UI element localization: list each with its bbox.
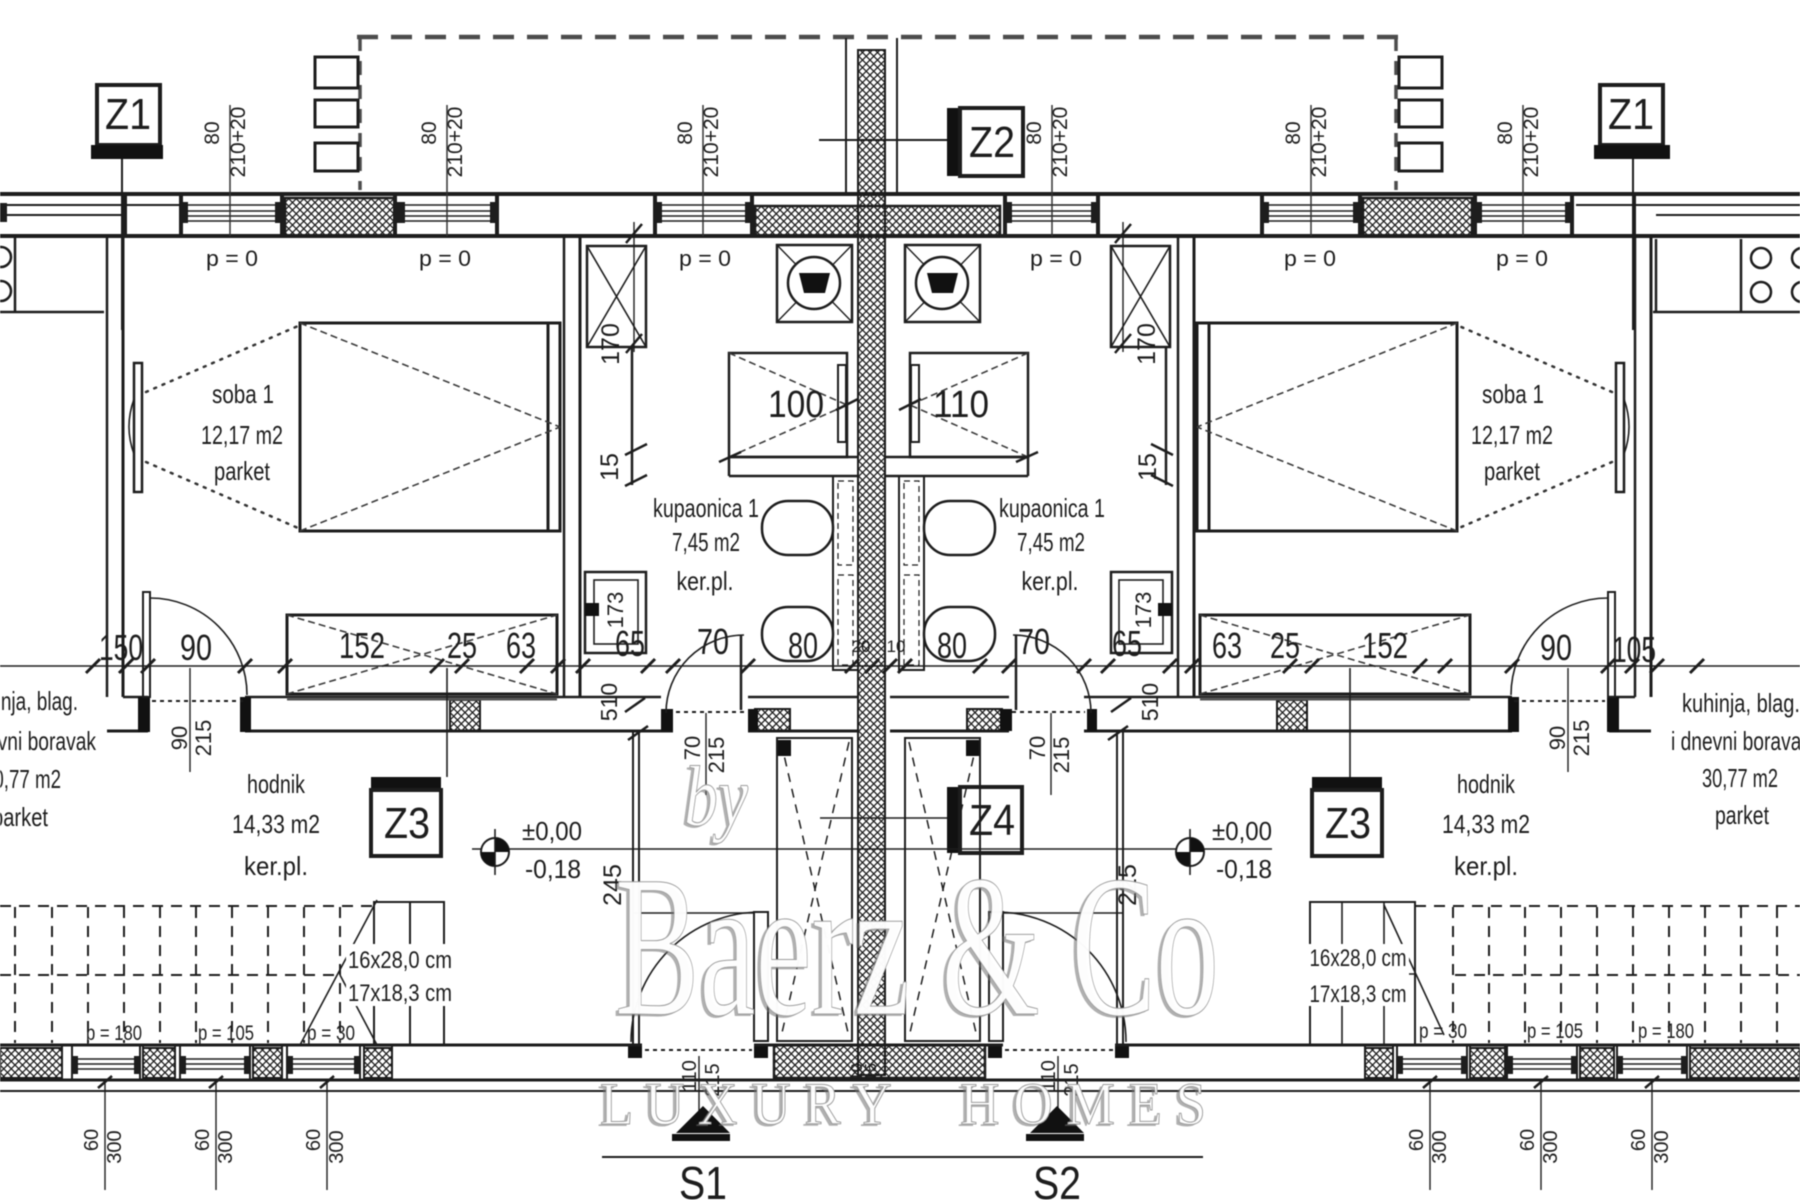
svg-text:p = 0: p = 0 [679,246,731,271]
svg-text:80: 80 [1023,121,1046,144]
svg-text:300: 300 [104,1130,126,1163]
svg-text:14,33 m2: 14,33 m2 [1442,809,1530,839]
svg-text:70: 70 [1018,621,1050,662]
svg-text:10: 10 [887,637,906,656]
svg-text:215: 215 [1049,737,1074,774]
svg-text:p = 30: p = 30 [307,1022,355,1045]
svg-text:p = 0: p = 0 [1030,246,1082,271]
svg-text:ker.pl.: ker.pl. [244,851,308,881]
svg-text:63: 63 [506,625,536,666]
svg-text:65: 65 [615,623,645,664]
svg-text:p = 0: p = 0 [206,246,258,271]
svg-text:15: 15 [596,453,624,481]
svg-text:20: 20 [852,637,871,656]
svg-text:parket: parket [1484,456,1541,486]
svg-text:17x18,3 cm: 17x18,3 cm [348,980,452,1007]
svg-text:60: 60 [192,1129,214,1151]
svg-text:p = 30: p = 30 [1419,1020,1467,1043]
svg-text:30,77 m2: 30,77 m2 [0,764,61,794]
svg-text:parket: parket [0,802,49,832]
svg-text:16x28,0 cm: 16x28,0 cm [1310,945,1407,972]
svg-text:170: 170 [1133,323,1161,365]
svg-text:70: 70 [1025,736,1050,760]
svg-text:p = 105: p = 105 [1527,1020,1583,1043]
svg-text:510: 510 [596,683,622,721]
svg-text:60: 60 [1406,1129,1428,1151]
svg-text:65: 65 [1112,623,1142,664]
svg-text:p = 0: p = 0 [1496,246,1548,271]
svg-text:150: 150 [99,627,143,668]
svg-text:parket: parket [1715,800,1770,830]
svg-text:300: 300 [1540,1130,1562,1163]
svg-text:80: 80 [674,121,697,144]
svg-text:parket: parket [214,456,271,486]
svg-text:7,45 m2: 7,45 m2 [672,527,740,557]
svg-text:90: 90 [167,726,192,750]
svg-text:60: 60 [1517,1129,1539,1151]
svg-text:kupaonica 1: kupaonica 1 [653,493,759,523]
svg-text:Z2: Z2 [969,118,1015,167]
svg-text:kuhinja, blag.: kuhinja, blag. [1682,688,1800,718]
svg-text:L U X U R Y H O M E S: L U X U R Y H O M E S [600,1071,1206,1137]
svg-text:i dnevni boravak: i dnevni boravak [1671,726,1800,756]
svg-text:soba 1: soba 1 [212,379,274,409]
svg-text:80: 80 [937,625,967,666]
svg-text:12,17 m2: 12,17 m2 [201,420,283,450]
svg-text:S2: S2 [1033,1157,1081,1200]
svg-text:300: 300 [1651,1130,1673,1163]
svg-text:i dnevni boravak: i dnevni boravak [0,726,97,756]
svg-text:510: 510 [1137,683,1163,721]
svg-text:ker.pl.: ker.pl. [1454,851,1518,881]
svg-text:60: 60 [303,1129,325,1151]
svg-text:30,77 m2: 30,77 m2 [1702,763,1778,793]
svg-text:ker.pl.: ker.pl. [677,566,734,596]
svg-text:Z1: Z1 [1608,90,1654,139]
svg-text:S1: S1 [679,1157,727,1200]
svg-text:soba 1: soba 1 [1482,379,1544,409]
svg-text:p = 0: p = 0 [1284,246,1336,271]
svg-text:by: by [684,748,749,844]
svg-text:80: 80 [201,121,224,144]
svg-text:Z1: Z1 [105,90,151,139]
svg-text:100: 100 [768,384,824,426]
svg-text:80: 80 [788,625,818,666]
svg-text:210+20: 210+20 [444,107,467,178]
svg-text:210+20: 210+20 [1520,107,1543,178]
svg-text:Z3: Z3 [384,799,430,848]
svg-text:60: 60 [81,1129,103,1151]
svg-text:p = 180: p = 180 [1638,1020,1694,1043]
svg-text:90: 90 [1540,627,1572,668]
svg-text:60: 60 [1628,1129,1650,1151]
svg-text:25: 25 [1270,625,1300,666]
svg-text:300: 300 [1429,1130,1451,1163]
svg-text:110: 110 [933,384,989,426]
svg-text:ker.pl.: ker.pl. [1022,566,1079,596]
svg-text:210+20: 210+20 [700,107,723,178]
svg-text:215: 215 [191,720,216,757]
svg-text:210+20: 210+20 [1049,107,1072,178]
svg-text:hodnik: hodnik [247,769,306,799]
svg-text:152: 152 [339,625,385,666]
svg-text:80: 80 [418,121,441,144]
svg-text:Z3: Z3 [1325,799,1371,848]
svg-text:Baerz & Co: Baerz & Co [615,834,1219,1058]
svg-text:215: 215 [1569,720,1594,757]
svg-text:±0,00: ±0,00 [522,816,582,846]
svg-text:p = 180: p = 180 [86,1022,142,1045]
svg-text:63: 63 [1212,625,1242,666]
svg-text:16x28,0 cm: 16x28,0 cm [348,947,452,974]
svg-text:152: 152 [1362,625,1408,666]
svg-text:15: 15 [1134,453,1162,481]
svg-text:kuhinja, blag.: kuhinja, blag. [0,686,78,716]
svg-text:±0,00: ±0,00 [1212,816,1272,846]
svg-text:7,45 m2: 7,45 m2 [1017,527,1085,557]
svg-text:-0,18: -0,18 [525,854,581,884]
svg-text:80: 80 [1282,121,1305,144]
svg-text:-0,18: -0,18 [1216,854,1272,884]
svg-text:300: 300 [326,1130,348,1163]
svg-text:210+20: 210+20 [227,107,250,178]
svg-text:p = 105: p = 105 [198,1022,254,1045]
svg-text:17x18,3 cm: 17x18,3 cm [1310,981,1407,1008]
svg-text:p = 0: p = 0 [419,246,471,271]
svg-text:25: 25 [447,625,477,666]
svg-text:kupaonica 1: kupaonica 1 [999,493,1105,523]
svg-text:90: 90 [1545,726,1570,750]
svg-text:300: 300 [215,1130,237,1163]
svg-text:12,17 m2: 12,17 m2 [1471,420,1553,450]
svg-text:hodnik: hodnik [1457,769,1516,799]
svg-text:105: 105 [1612,629,1656,670]
svg-text:170: 170 [597,323,625,365]
svg-text:210+20: 210+20 [1308,107,1331,178]
svg-text:90: 90 [180,627,212,668]
svg-text:70: 70 [697,621,729,662]
svg-text:14,33 m2: 14,33 m2 [232,809,320,839]
svg-text:80: 80 [1494,121,1517,144]
